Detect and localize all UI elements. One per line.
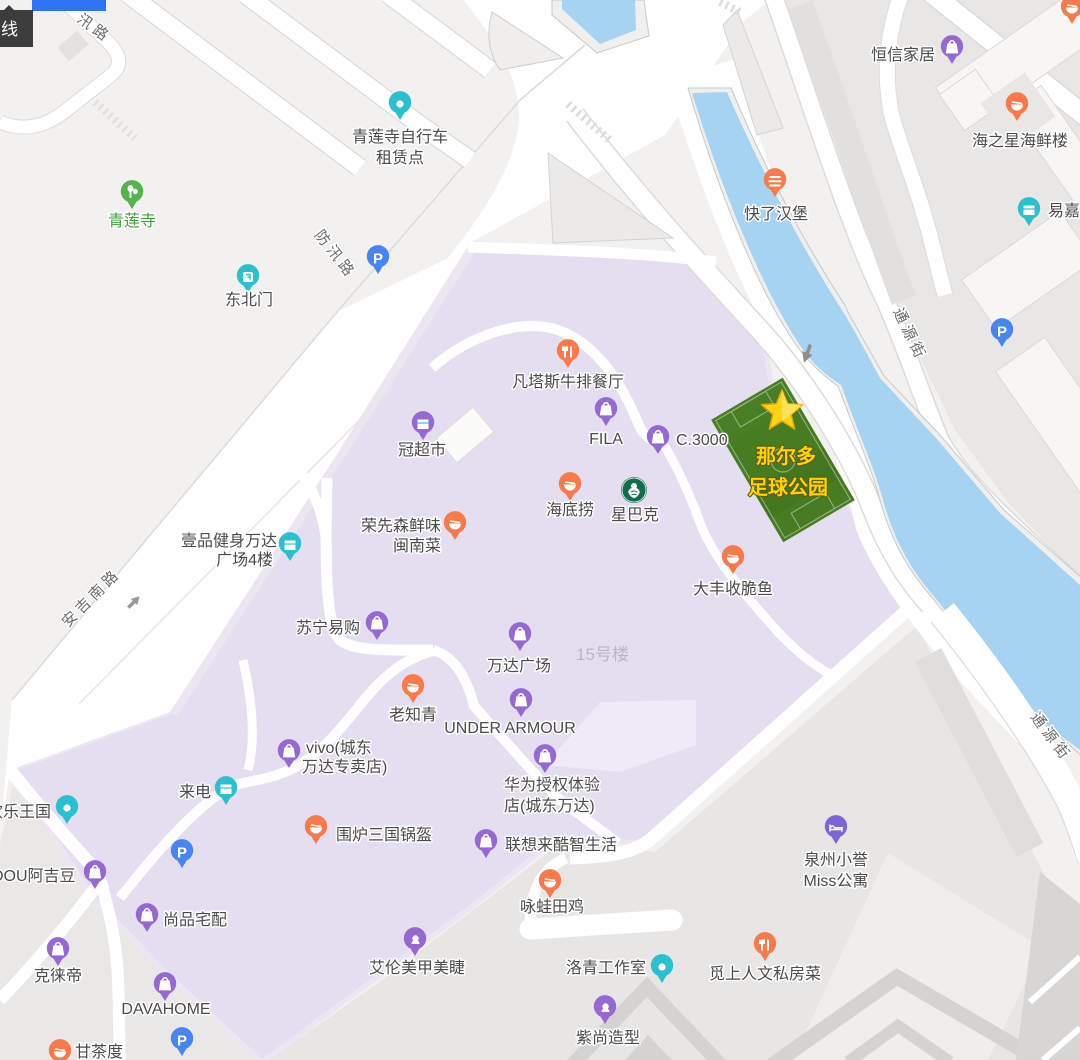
svg-text:冠超市: 冠超市 [398, 441, 446, 459]
svg-text:UNDER ARMOUR: UNDER ARMOUR [444, 720, 576, 737]
svg-text:vivo(城东: vivo(城东 [306, 739, 372, 757]
svg-text:FILA: FILA [589, 431, 623, 448]
svg-text:觅上人文私房菜: 觅上人文私房菜 [709, 965, 821, 983]
svg-text:易嘉: 易嘉 [1048, 202, 1080, 220]
svg-text:P: P [373, 251, 383, 268]
svg-text:尚品宅配: 尚品宅配 [163, 911, 227, 929]
svg-text:P: P [997, 324, 1007, 341]
svg-text:围炉三国锅盔: 围炉三国锅盔 [336, 825, 432, 844]
svg-text:来电: 来电 [179, 783, 211, 801]
svg-text:万达专卖店): 万达专卖店) [302, 758, 387, 776]
svg-text:Miss公寓: Miss公寓 [804, 872, 869, 890]
svg-text:DOU阿吉豆: DOU阿吉豆 [0, 867, 76, 885]
svg-text:C.3000: C.3000 [676, 432, 728, 449]
svg-text:P: P [177, 845, 187, 862]
svg-text:华为授权体验: 华为授权体验 [504, 776, 600, 794]
svg-text:老知青: 老知青 [389, 706, 437, 724]
svg-text:东北门: 东北门 [225, 291, 273, 309]
svg-text:快了汉堡: 快了汉堡 [744, 205, 808, 223]
svg-text:15号楼: 15号楼 [576, 645, 629, 664]
svg-text:紫尚造型: 紫尚造型 [576, 1029, 640, 1047]
svg-text:海底捞: 海底捞 [546, 501, 594, 519]
svg-text:咏蛙田鸡: 咏蛙田鸡 [520, 898, 584, 916]
svg-text:联想来酷智生活: 联想来酷智生活 [505, 836, 617, 854]
svg-text:大丰收脆鱼: 大丰收脆鱼 [693, 580, 773, 598]
svg-text:闽南菜: 闽南菜 [393, 537, 441, 555]
svg-text:星巴克: 星巴克 [611, 506, 659, 524]
svg-text:海之星海鲜楼: 海之星海鲜楼 [972, 132, 1068, 150]
svg-text:广场4楼: 广场4楼 [216, 551, 273, 569]
svg-text:恒信家居: 恒信家居 [871, 46, 935, 64]
svg-text:DAVAHOME: DAVAHOME [121, 1001, 210, 1018]
svg-text:克徕帝: 克徕帝 [34, 967, 82, 985]
svg-text:青莲寺自行车: 青莲寺自行车 [352, 128, 448, 146]
svg-text:万达广场: 万达广场 [487, 657, 551, 675]
svg-text:青莲寺: 青莲寺 [108, 212, 156, 230]
svg-text:凡塔斯牛排餐厅: 凡塔斯牛排餐厅 [512, 373, 624, 391]
svg-text:泉州小誉: 泉州小誉 [804, 851, 868, 869]
svg-text:P: P [177, 1033, 187, 1050]
svg-text:苏宁易购: 苏宁易购 [296, 619, 360, 637]
svg-text:那尔多: 那尔多 [756, 444, 816, 468]
svg-text:甘茶度: 甘茶度 [75, 1043, 123, 1060]
svg-text:租赁点: 租赁点 [376, 149, 424, 167]
svg-text:洛青工作室: 洛青工作室 [566, 959, 646, 977]
svg-text:荣先森鲜味: 荣先森鲜味 [361, 517, 441, 535]
svg-text:艾伦美甲美睫: 艾伦美甲美睫 [369, 959, 465, 977]
svg-text:店(城东万达): 店(城东万达) [504, 797, 595, 815]
svg-text:足球公园: 足球公园 [748, 476, 828, 499]
svg-text:线: 线 [1, 20, 18, 39]
svg-text:欢乐王国: 欢乐王国 [0, 803, 51, 821]
svg-text:壹品健身万达: 壹品健身万达 [181, 532, 277, 550]
